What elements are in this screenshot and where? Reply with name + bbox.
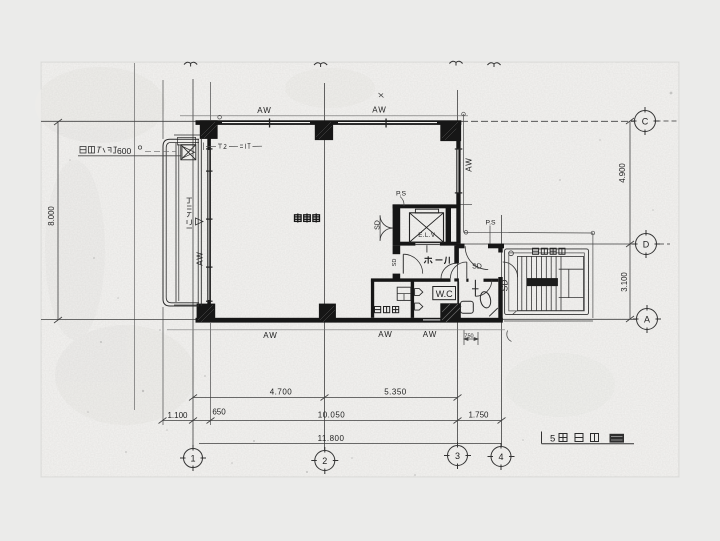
- svg-text:AW: AW: [263, 331, 278, 340]
- svg-text:3: 3: [455, 451, 460, 461]
- svg-text:SD: SD: [375, 220, 382, 230]
- svg-text:2: 2: [322, 456, 327, 466]
- svg-text:AW: AW: [423, 330, 438, 339]
- svg-text:10.050: 10.050: [318, 411, 346, 420]
- svg-text:11.800: 11.800: [318, 434, 345, 443]
- svg-text:5.350: 5.350: [384, 388, 407, 397]
- svg-text:AW: AW: [465, 157, 474, 172]
- svg-text:750: 750: [464, 334, 473, 340]
- svg-text:4.900: 4.900: [618, 163, 627, 183]
- svg-text:E.L.V: E.L.V: [418, 232, 436, 239]
- svg-text:AW: AW: [378, 330, 393, 339]
- svg-text:AW: AW: [196, 251, 205, 266]
- svg-text:600: 600: [117, 146, 131, 156]
- svg-text:650: 650: [212, 408, 226, 417]
- svg-text:8.000: 8.000: [47, 206, 56, 226]
- svg-text:W.C: W.C: [436, 289, 453, 299]
- svg-text:A: A: [644, 315, 650, 325]
- svg-text:1.100: 1.100: [167, 411, 188, 420]
- svg-text:D: D: [643, 240, 650, 250]
- svg-text:4.700: 4.700: [270, 388, 293, 397]
- svg-text:P.S: P.S: [396, 191, 407, 198]
- svg-text:AW: AW: [257, 106, 272, 115]
- svg-text:1.750: 1.750: [468, 411, 489, 420]
- svg-text:AW: AW: [372, 106, 387, 115]
- svg-text:SD: SD: [392, 259, 398, 267]
- svg-text:C: C: [642, 117, 649, 127]
- svg-text:3.100: 3.100: [620, 272, 629, 292]
- svg-text:1: 1: [190, 454, 195, 464]
- svg-text:SD: SD: [472, 264, 482, 271]
- svg-text:5: 5: [550, 434, 555, 445]
- svg-text:4: 4: [498, 452, 503, 462]
- svg-text:P.S: P.S: [486, 220, 497, 227]
